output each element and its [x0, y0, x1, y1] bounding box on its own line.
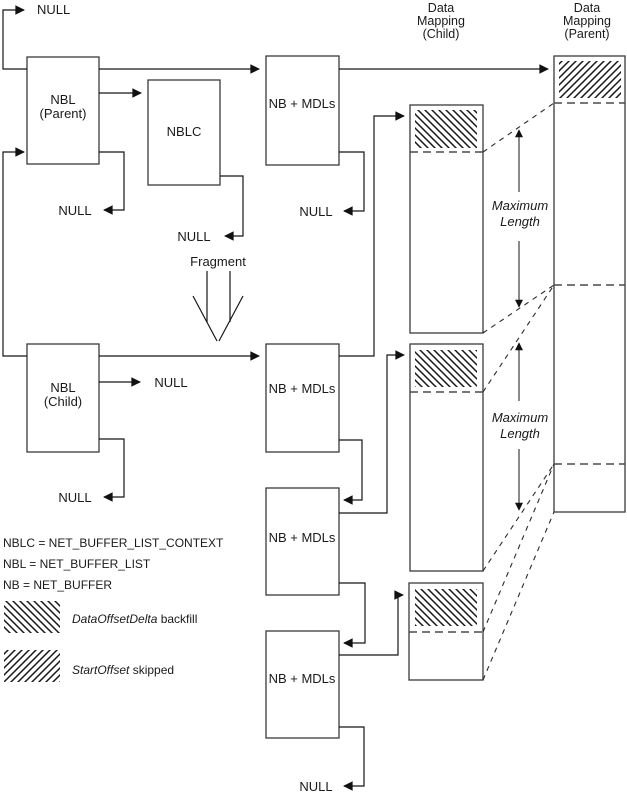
nbl-parent-label-line1: NBL	[50, 92, 75, 107]
legend-skipped-term: StartOffset	[72, 663, 130, 677]
legend-nbl-definition: NBL = NET_BUFFER_LIST	[3, 557, 151, 571]
header-child-line2: Mapping	[417, 14, 465, 28]
nb-mdls-parent-label: NB + MDLs	[269, 96, 336, 111]
arrow-nb2-to-nb3	[339, 583, 365, 643]
backfill-hatch-child1	[415, 110, 477, 148]
null-label-nblc: NULL	[177, 229, 210, 244]
header-child-line3: (Child)	[423, 27, 460, 41]
maximum-length2-line1: Maximum	[492, 410, 549, 425]
skipped-hatch-swatch	[4, 650, 60, 682]
header-parent-line2: Mapping	[563, 14, 611, 28]
legend-skipped-rest: skipped	[129, 663, 174, 677]
backfill-hatch-swatch	[4, 601, 60, 633]
nb-mdls-child3-label: NB + MDLs	[269, 671, 336, 686]
arrow-nb2-to-child2-mapping	[339, 355, 404, 513]
fragment-label: Fragment	[190, 254, 246, 269]
arrow-nblchild-to-nblparent	[3, 152, 27, 356]
null-label-top: NULL	[37, 2, 70, 17]
legend-nblc-definition: NBLC = NET_BUFFER_LIST_CONTEXT	[3, 536, 224, 550]
nbl-parent-label-line2: (Parent)	[40, 106, 87, 121]
arrow-nbparent-to-null	[339, 152, 364, 211]
data-mapping-parent-header: Data Mapping (Parent)	[563, 1, 611, 41]
maximum-length2-line2: Length	[500, 426, 540, 441]
maximum-length1-line1: Maximum	[492, 198, 549, 213]
arrow-nblparent-prev-to-null	[3, 10, 27, 69]
backfill-hatch-child2	[415, 350, 477, 387]
data-mapping-child-header: Data Mapping (Child)	[417, 1, 465, 41]
nb-mdls-child1-label: NB + MDLs	[269, 381, 336, 396]
arrow-nb1-to-nb2	[339, 440, 362, 500]
skipped-hatch-parent	[559, 61, 621, 98]
null-label-bottom: NULL	[299, 779, 332, 794]
null-label-nblchild-next: NULL	[154, 375, 187, 390]
nb-mdls-child1-box	[266, 344, 339, 452]
arrow-nblparent-next-to-null	[99, 152, 124, 210]
legend: NBLC = NET_BUFFER_LIST_CONTEXT NBL = NET…	[3, 536, 224, 682]
nbl-child-label-line1: NBL	[50, 380, 75, 395]
fragment-arrowhead-left	[193, 296, 217, 341]
nbl-child-label-line2: (Child)	[44, 394, 82, 409]
maximum-length1-line2: Length	[500, 214, 540, 229]
projection-line-child3-bottom	[483, 512, 554, 680]
null-label-nblparent: NULL	[58, 203, 91, 218]
nb-mdls-child2-label: NB + MDLs	[269, 530, 336, 545]
arrow-nblchild-prev-to-null	[99, 439, 124, 497]
arrow-nblc-to-null	[220, 176, 243, 236]
legend-backfill-rest: backfill	[157, 612, 197, 626]
fragment-down-arrow	[193, 271, 243, 341]
backfill-hatch-child3	[415, 589, 477, 626]
null-label-nbparent: NULL	[299, 204, 332, 219]
nblc-label: NBLC	[167, 124, 202, 139]
diagram-page: Data Mapping (Child) Data Mapping (Paren…	[0, 0, 627, 795]
net-buffer-list-diagram: Data Mapping (Child) Data Mapping (Paren…	[0, 0, 627, 795]
legend-skipped-label: StartOffset skipped	[72, 663, 174, 677]
fragment-arrowhead-right	[219, 296, 243, 341]
legend-nb-definition: NB = NET_BUFFER	[3, 578, 112, 592]
legend-backfill-label: DataOffsetDelta backfill	[72, 612, 197, 626]
data-mapping-parent-box	[554, 56, 625, 512]
arrow-nb3-to-child3-mapping	[339, 595, 403, 655]
legend-backfill-term: DataOffsetDelta	[72, 612, 158, 626]
header-child-line1: Data	[428, 1, 454, 15]
header-parent-line1: Data	[574, 1, 600, 15]
null-label-nblchild-prev: NULL	[58, 490, 91, 505]
arrow-nb3-next-to-null	[339, 727, 364, 786]
header-parent-line3: (Parent)	[564, 27, 609, 41]
